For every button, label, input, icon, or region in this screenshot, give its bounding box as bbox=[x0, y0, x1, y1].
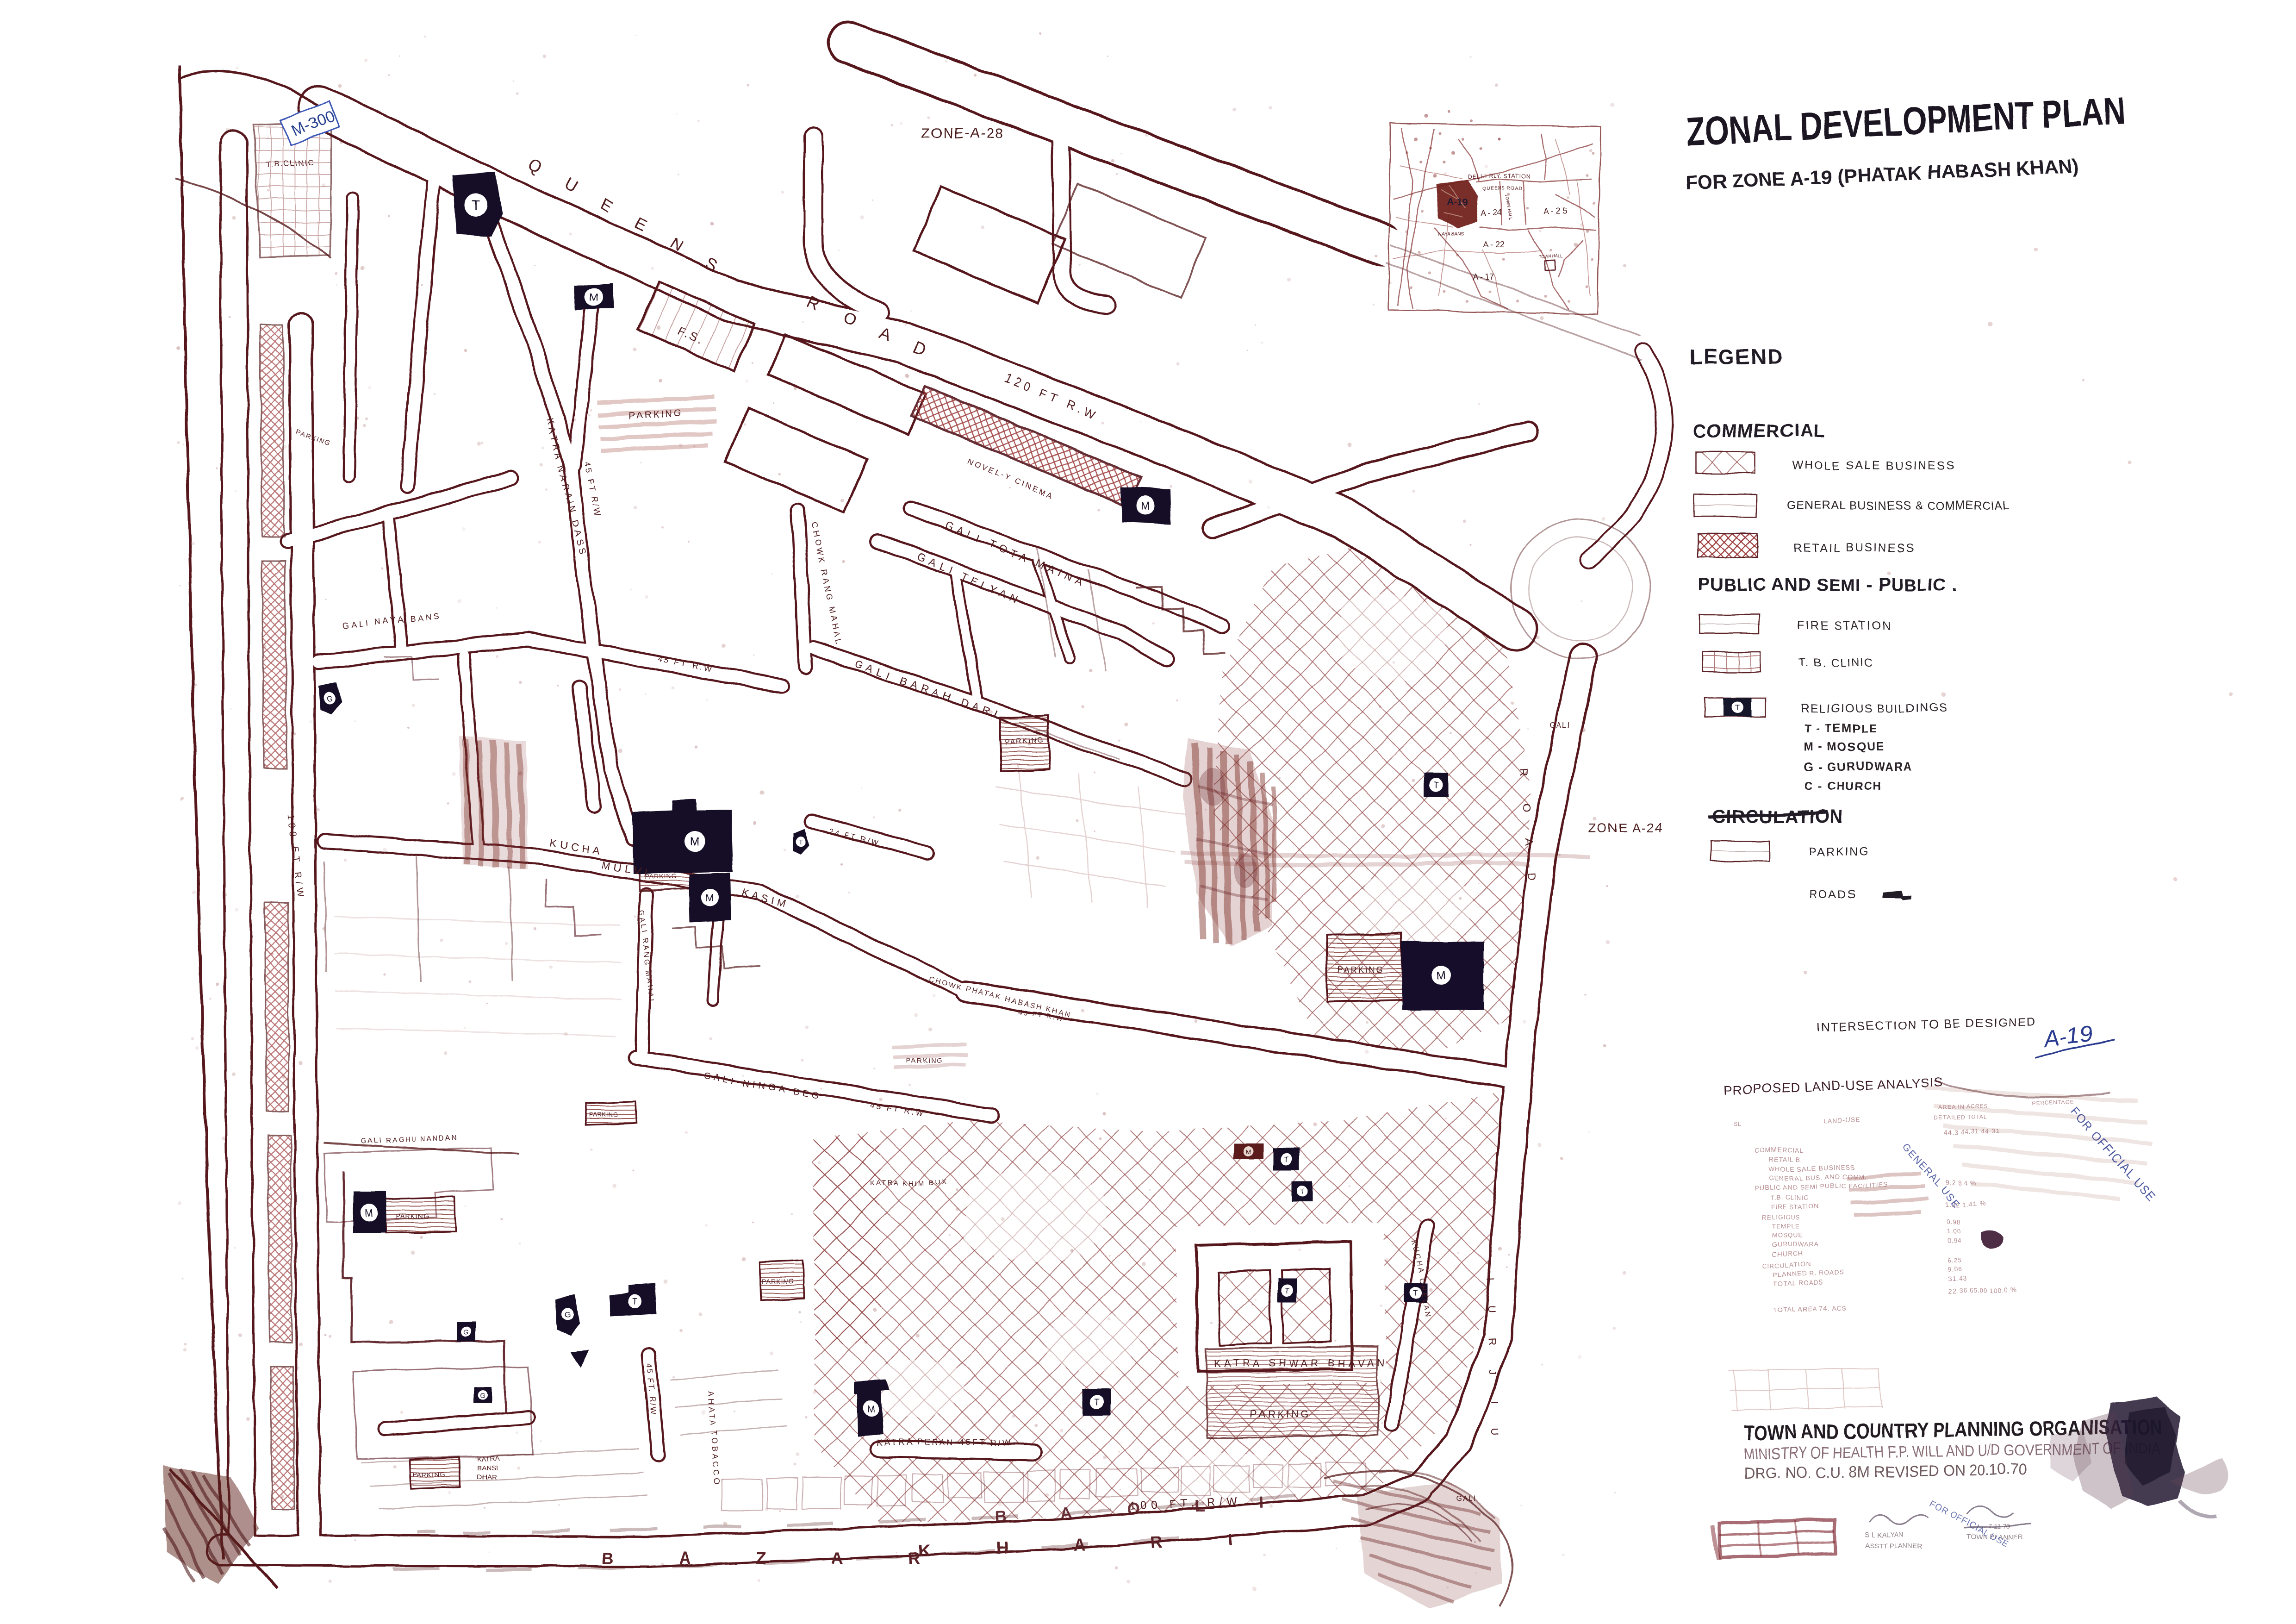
svg-text:SL: SL bbox=[1734, 1121, 1742, 1127]
svg-text:KATRA SHWAR BHAVAN: KATRA SHWAR BHAVAN bbox=[1213, 1357, 1388, 1369]
svg-text:G: G bbox=[326, 694, 332, 703]
svg-text:PARKING: PARKING bbox=[589, 1111, 619, 1118]
svg-text:KATRA KHIM BUX: KATRA KHIM BUX bbox=[870, 1179, 947, 1187]
svg-text:T: T bbox=[472, 198, 479, 212]
svg-text:ASSTT PLANNER: ASSTT PLANNER bbox=[1865, 1542, 1922, 1550]
svg-text:M: M bbox=[867, 1404, 875, 1414]
svg-text:LAND-USE: LAND-USE bbox=[1823, 1116, 1860, 1124]
svg-text:T - TEMPLE: T - TEMPLE bbox=[1804, 722, 1878, 735]
svg-text:31.43: 31.43 bbox=[1948, 1275, 1966, 1283]
svg-text:T: T bbox=[1094, 1398, 1100, 1408]
svg-text:NAYA BANS: NAYA BANS bbox=[1438, 231, 1464, 237]
svg-text:GENERAL BUSINESS & COMMERCIAL: GENERAL BUSINESS & COMMERCIAL bbox=[1787, 499, 2010, 512]
svg-text:T: T bbox=[799, 838, 803, 846]
svg-text:ROADS: ROADS bbox=[1809, 888, 1857, 901]
svg-text:T: T bbox=[632, 1298, 638, 1307]
svg-text:DELHI RLY. STATION: DELHI RLY. STATION bbox=[1468, 173, 1530, 180]
svg-text:9.06: 9.06 bbox=[1948, 1266, 1962, 1274]
svg-text:COMMERCIAL: COMMERCIAL bbox=[1755, 1146, 1804, 1155]
svg-text:G: G bbox=[564, 1310, 570, 1319]
svg-text:7 11 70: 7 11 70 bbox=[1988, 1522, 2010, 1529]
svg-text:T. B. CLINIC: T. B. CLINIC bbox=[1798, 656, 1874, 669]
svg-text:S L KALYAN: S L KALYAN bbox=[1865, 1531, 1904, 1539]
svg-text:M: M bbox=[706, 892, 714, 903]
svg-text:M - MOSQUE: M - MOSQUE bbox=[1804, 741, 1885, 754]
svg-text:1.00: 1.00 bbox=[1947, 1227, 1961, 1235]
svg-text:6.25: 6.25 bbox=[1948, 1257, 1962, 1265]
svg-text:COMMERCIAL: COMMERCIAL bbox=[1693, 421, 1825, 441]
svg-text:A - 24: A - 24 bbox=[1480, 208, 1502, 218]
svg-text:TOWN HALL: TOWN HALL bbox=[1538, 254, 1562, 258]
svg-text:M: M bbox=[1437, 970, 1446, 983]
svg-text:0.98: 0.98 bbox=[1947, 1218, 1961, 1226]
svg-text:T: T bbox=[1284, 1155, 1288, 1164]
svg-text:TEMPLE: TEMPLE bbox=[1772, 1222, 1800, 1230]
svg-text:A - 17: A - 17 bbox=[1472, 272, 1493, 281]
svg-text:DETAILED TOTAL: DETAILED TOTAL bbox=[1935, 1113, 1987, 1121]
svg-text:LEGEND: LEGEND bbox=[1689, 344, 1784, 369]
svg-text:DHAR: DHAR bbox=[477, 1473, 497, 1481]
svg-text:FIRE STATION: FIRE STATION bbox=[1798, 619, 1892, 632]
svg-text:FIRE STATION: FIRE STATION bbox=[1770, 1202, 1820, 1211]
svg-text:CIRCULATION: CIRCULATION bbox=[1762, 1261, 1811, 1269]
svg-text:KATRA PERAN 45FT R/W: KATRA PERAN 45FT R/W bbox=[877, 1438, 1012, 1447]
svg-text:CHURCH: CHURCH bbox=[1772, 1250, 1803, 1258]
svg-text:C - CHURCH: C - CHURCH bbox=[1804, 780, 1882, 793]
svg-text:PARKING: PARKING bbox=[1809, 845, 1870, 858]
svg-text:RETAIL B.: RETAIL B. bbox=[1769, 1155, 1803, 1163]
svg-text:TOTAL ROADS: TOTAL ROADS bbox=[1773, 1279, 1823, 1287]
svg-text:MOSQUE: MOSQUE bbox=[1772, 1231, 1804, 1240]
svg-text:M: M bbox=[1141, 500, 1151, 512]
svg-text:KATRA: KATRA bbox=[477, 1455, 499, 1462]
svg-text:M: M bbox=[365, 1207, 373, 1218]
svg-text:G: G bbox=[464, 1329, 469, 1337]
svg-text:PARKING: PARKING bbox=[906, 1057, 943, 1065]
svg-text:T: T bbox=[1413, 1289, 1418, 1298]
svg-text:RETAIL BUSINESS: RETAIL BUSINESS bbox=[1794, 542, 1916, 555]
svg-text:RELIGIOUS BUILDINGS: RELIGIOUS BUILDINGS bbox=[1801, 702, 1948, 715]
svg-text:PARKING: PARKING bbox=[762, 1277, 794, 1285]
svg-text:PARKING: PARKING bbox=[413, 1471, 445, 1478]
svg-text:T: T bbox=[1285, 1287, 1289, 1295]
svg-text:PARKING: PARKING bbox=[1250, 1408, 1311, 1420]
svg-text:A - 22: A - 22 bbox=[1484, 240, 1506, 250]
svg-text:T.B. CLINIC: T.B. CLINIC bbox=[1770, 1193, 1809, 1201]
svg-text:M: M bbox=[589, 291, 598, 304]
svg-text:QUEENS ROAD: QUEENS ROAD bbox=[1483, 186, 1522, 191]
svg-text:M: M bbox=[1245, 1148, 1251, 1156]
svg-text:0.94: 0.94 bbox=[1947, 1237, 1962, 1244]
svg-text:B A Z A R: B A Z A R bbox=[602, 1549, 951, 1568]
svg-text:PARKING: PARKING bbox=[1338, 965, 1384, 974]
svg-text:PUBLIC AND SEMI - PUBLIC .: PUBLIC AND SEMI - PUBLIC . bbox=[1699, 575, 1957, 595]
svg-text:A-19: A-19 bbox=[1447, 196, 1469, 208]
svg-text:PARKING: PARKING bbox=[396, 1212, 430, 1220]
svg-text:GURUDWARA: GURUDWARA bbox=[1772, 1240, 1819, 1249]
svg-text:GALI: GALI bbox=[1456, 1495, 1476, 1503]
svg-text:T: T bbox=[1735, 703, 1739, 712]
svg-text:RELIGIOUS: RELIGIOUS bbox=[1761, 1213, 1801, 1221]
svg-text:T: T bbox=[1433, 781, 1439, 791]
svg-text:GALI: GALI bbox=[1549, 721, 1571, 730]
svg-text:ZONE-A-28: ZONE-A-28 bbox=[921, 125, 1004, 141]
svg-text:M: M bbox=[690, 835, 700, 849]
svg-text:ZONE A-24: ZONE A-24 bbox=[1588, 821, 1663, 835]
svg-text:T: T bbox=[1300, 1188, 1304, 1196]
svg-text:PERCENTAGE: PERCENTAGE bbox=[2031, 1099, 2074, 1106]
svg-text:G - GURUDWARA: G - GURUDWARA bbox=[1804, 760, 1913, 773]
svg-text:A - 2 5: A - 2 5 bbox=[1544, 206, 1568, 216]
svg-text:WHOLE SALE BUSINESS: WHOLE SALE BUSINESS bbox=[1792, 459, 1955, 472]
svg-text:BANSI: BANSI bbox=[477, 1464, 498, 1472]
svg-text:G: G bbox=[480, 1392, 485, 1399]
